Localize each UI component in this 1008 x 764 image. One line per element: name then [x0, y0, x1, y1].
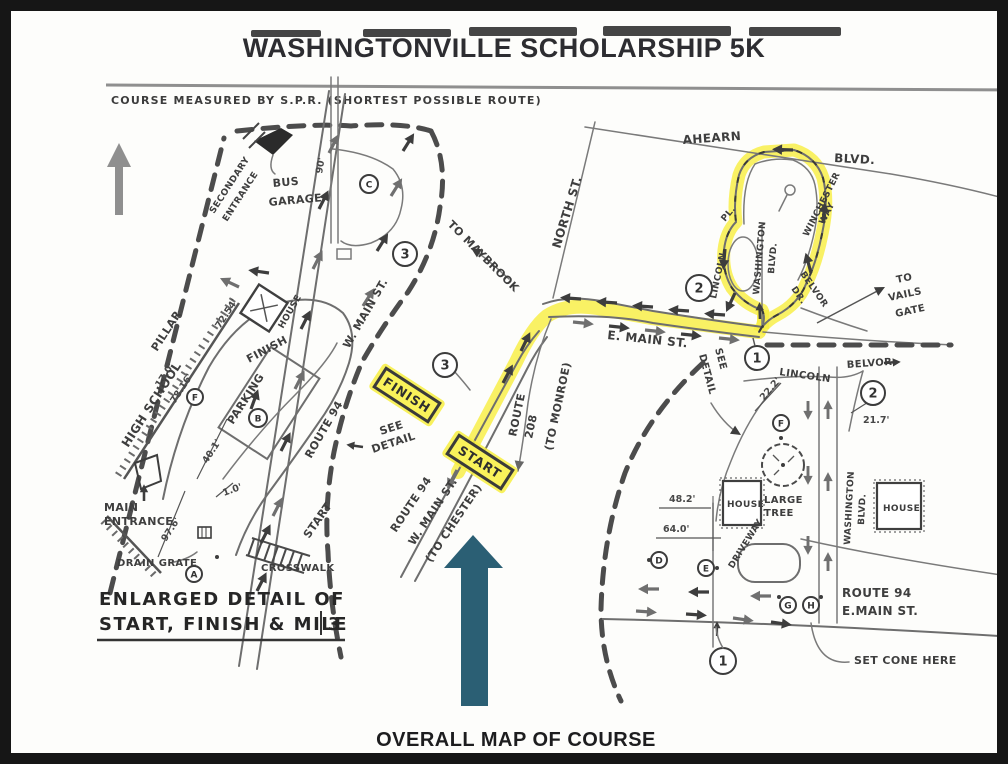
- crosswalk-label: CROSSWALK: [261, 563, 335, 574]
- leader-line: [811, 623, 849, 662]
- measurement: 64.0': [663, 524, 689, 535]
- route94-curve-road: [801, 539, 1008, 577]
- bus-garage-label: BUS: [272, 175, 299, 190]
- mile-marker-3-detail: 3: [393, 242, 417, 266]
- detail-caption: START, FINISH & MILE: [99, 614, 348, 635]
- detail-caption: ENLARGED DETAIL OF: [99, 589, 345, 610]
- lincoln-corner-road: [849, 371, 863, 431]
- route-arrow: [686, 609, 708, 621]
- point-dot: [779, 436, 783, 440]
- svg-text:B: B: [255, 415, 262, 425]
- detail-boundary-dash: [237, 125, 431, 131]
- measurement: 48.2': [669, 494, 695, 505]
- emain-detail-road: [603, 619, 1008, 637]
- leader-line: [716, 627, 723, 648]
- wmain-detail-label: W. MAIN ST.: [340, 276, 390, 350]
- route-arrow: [803, 536, 812, 555]
- scanned-course-map-page: COURSE MEASURED BY S.P.R. (SHORTEST POSS…: [0, 0, 1008, 764]
- route-arrow: [399, 130, 419, 153]
- point-dot: [715, 566, 719, 570]
- to-maybrook-label: TO MAYBROOK: [445, 218, 522, 295]
- start-direction-label: START: [301, 500, 335, 541]
- entrance-marker: [135, 455, 161, 489]
- map-canvas: COURSE MEASURED BY S.P.R. (SHORTEST POSS…: [11, 11, 1008, 764]
- washington-blvd-label: WASHINGTON: [752, 221, 768, 296]
- svg-text:H: H: [807, 602, 815, 612]
- north-arrow: [107, 143, 131, 215]
- course-direction-dashes: [724, 150, 826, 332]
- ahearn-blvd-label: BLVD.: [834, 151, 876, 167]
- point-marker-f-left: F: [187, 389, 203, 405]
- main-entrance-label: MAIN: [104, 501, 138, 514]
- mile-marker-3-center: 3: [433, 353, 457, 377]
- mile-marker-1-detail: 1: [710, 648, 736, 674]
- large-tree-label: LARGE: [764, 495, 803, 506]
- svg-text:C: C: [366, 181, 373, 191]
- to-vails-gate-label: GATE: [894, 303, 926, 320]
- house-label: HOUSE: [883, 504, 920, 514]
- belvor-detail-label: BELVOR: [846, 357, 892, 371]
- large-tree-label: TREE: [764, 508, 794, 519]
- overall-map-pointer-arrow: [444, 535, 503, 706]
- ahearn-label: AHEARN: [682, 129, 741, 147]
- measurement: 22.2': [758, 376, 783, 403]
- measurement: 40.1': [200, 438, 224, 466]
- ahearn-blvd-road: [585, 127, 1008, 201]
- point-marker-a: A: [186, 566, 202, 582]
- measurement: 1.0': [221, 482, 243, 499]
- emain-st-label: E. MAIN ST.: [607, 328, 689, 350]
- route94-emain-label: E.MAIN ST.: [842, 604, 918, 618]
- belvor-dr-road: [801, 308, 867, 331]
- mile-marker-2-detail: 2: [861, 381, 885, 405]
- washington-blvd-detail-label: BLVD.: [857, 493, 869, 525]
- to-vails-gate-label: VAILS: [887, 286, 923, 304]
- washington-blvd-detail-label: WASHINGTON: [843, 471, 857, 545]
- mile-marker-2-loop: 2: [686, 275, 712, 301]
- point-marker-c: C: [360, 175, 378, 193]
- mile1-mile2-detail: HOUSE HOUSE: [601, 345, 1008, 701]
- route208-label: 208: [522, 413, 540, 439]
- route-arrow: [770, 617, 792, 630]
- route-arrow: [688, 587, 709, 597]
- point-marker-e: E: [698, 560, 714, 576]
- point-marker-f: F: [773, 415, 789, 431]
- see-detail-label: DETAIL: [696, 353, 717, 396]
- cul-de-sac: [785, 185, 795, 195]
- detail-caption-mile-number: 3: [328, 614, 342, 635]
- road-end-arrow: [874, 283, 887, 296]
- leader-line: [271, 155, 275, 174]
- drain-grate-symbol: [198, 527, 211, 538]
- route-arrow: [823, 400, 832, 419]
- measurement: 21.7': [863, 415, 889, 426]
- svg-text:2: 2: [694, 282, 703, 297]
- bus-garage-symbol: [254, 128, 293, 155]
- route-arrow: [373, 230, 393, 253]
- measurement: 72.54': [213, 297, 240, 331]
- small-building: [337, 249, 351, 259]
- route94-emain-label: ROUTE 94: [842, 586, 912, 600]
- point-marker-h: H: [803, 597, 819, 613]
- svg-text:A: A: [191, 571, 198, 581]
- drain-grate-label: DRAIN GRATE: [117, 558, 197, 569]
- route-arrow: [636, 606, 658, 618]
- point-dot: [777, 595, 781, 599]
- svg-text:G: G: [784, 602, 791, 612]
- bus-garage-loop-road: [333, 149, 403, 246]
- leader-line: [454, 371, 470, 390]
- bus-garage-label: GARAGE: [268, 191, 322, 209]
- measurement: 90': [314, 157, 328, 175]
- svg-text:F: F: [192, 394, 198, 404]
- svg-text:1: 1: [718, 655, 727, 670]
- svg-text:D: D: [655, 557, 662, 567]
- finish-area-label: FINISH: [244, 333, 289, 365]
- large-tree-symbol: [762, 444, 804, 486]
- see-detail-label: SEE: [712, 347, 728, 371]
- route-arrow: [750, 591, 771, 601]
- svg-text:3: 3: [440, 359, 449, 374]
- house-right: HOUSE: [874, 480, 924, 532]
- scan-rule-line: [106, 85, 1008, 90]
- leader-line: [753, 338, 755, 346]
- pillar-label: PILLAR: [149, 308, 185, 353]
- overall-map-caption: OVERALL MAP OF COURSE: [376, 729, 656, 751]
- route-arrow: [247, 265, 269, 278]
- route-arrow: [324, 132, 343, 155]
- page-title: WASHINGTONVILLE SCHOLARSHIP 5K: [11, 33, 997, 64]
- route-arrow: [346, 441, 364, 452]
- svg-text:3: 3: [400, 248, 409, 263]
- point-dot: [215, 555, 219, 559]
- mile-marker-1-emain: 1: [745, 346, 769, 370]
- route-arrow: [803, 466, 812, 485]
- point-marker-b: B: [249, 409, 267, 427]
- svg-text:1: 1: [752, 352, 761, 367]
- house-label: HOUSE: [727, 500, 764, 510]
- point-marker-d: D: [651, 552, 667, 568]
- svg-text:F: F: [778, 420, 784, 430]
- cul-de-sac-stem: [779, 195, 787, 211]
- lincoln-detail-label: LINCOLN: [779, 367, 832, 385]
- svg-text:2: 2: [868, 387, 877, 402]
- set-cone-label: SET CONE HERE: [854, 654, 957, 667]
- point-dot: [647, 558, 651, 562]
- route-arrow: [823, 552, 832, 571]
- route-arrow: [268, 495, 287, 518]
- route-arrow: [638, 584, 659, 594]
- route208-label: (TO MONROE): [542, 361, 573, 452]
- point-marker-g: G: [780, 597, 796, 613]
- route-arrow: [803, 401, 812, 420]
- main-entrance-label: ENTRANCE: [104, 515, 173, 528]
- route-arrow: [218, 273, 241, 291]
- route-arrow: [823, 472, 832, 491]
- point-dot: [819, 595, 823, 599]
- entrance-wall-hatch: [103, 521, 157, 578]
- washington-blvd-label: BLVD.: [767, 242, 780, 274]
- svg-text:E: E: [703, 565, 709, 575]
- to-vails-gate-label: TO: [895, 272, 913, 286]
- route-arrow: [572, 317, 594, 330]
